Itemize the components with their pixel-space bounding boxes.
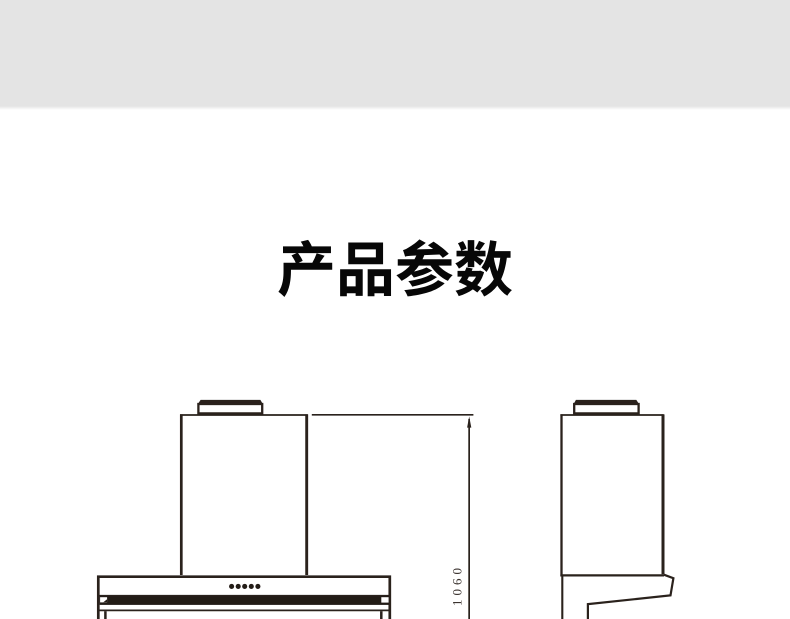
svg-text:1060: 1060 — [450, 564, 465, 606]
